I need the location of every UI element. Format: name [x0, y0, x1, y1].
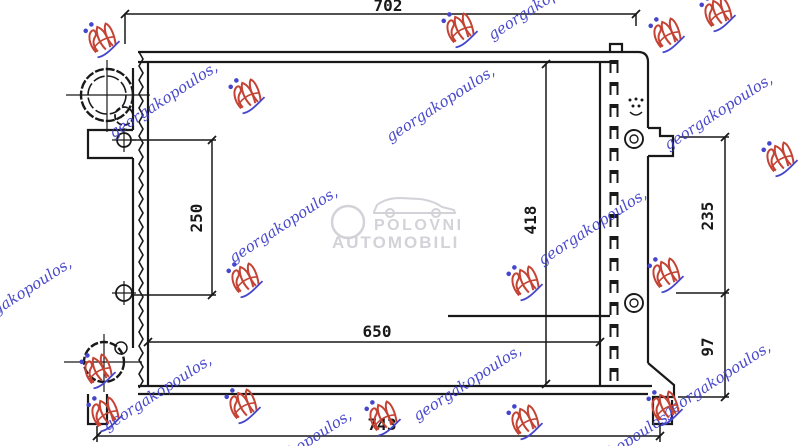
watermark-stamp-icon: [77, 345, 118, 389]
watermark-text: georgakopoulos,: [661, 70, 776, 154]
dimension-702: 702: [374, 0, 403, 15]
dot: [635, 98, 638, 101]
watermark-stamp-icon: [759, 133, 800, 177]
watermark-stamp-icon: [81, 14, 122, 58]
logo-line1: POLOVNI: [374, 217, 464, 234]
dimension-235: 235: [698, 202, 717, 231]
dimension-650: 650: [363, 322, 392, 341]
watermark-text: georgakopoulos,: [100, 351, 215, 435]
center-watermark-logo: POLOVNI AUTOMOBILI: [332, 198, 464, 252]
screw-head-icon-top: [625, 130, 643, 148]
watermark-text: georgakopoulos,: [106, 58, 221, 142]
watermark-text: georgakopoulos,: [535, 185, 650, 269]
vent-dots-icon: [629, 98, 644, 116]
radiator-diagram-page: POLOVNI AUTOMOBILI 702: [0, 0, 800, 446]
watermark-text: georgakopoulos,: [0, 254, 75, 338]
watermark-stamp-icon: [645, 249, 686, 293]
dot: [632, 105, 635, 108]
dimension-97: 97: [698, 337, 717, 356]
watermark-text: georgakopoulos,: [383, 62, 498, 146]
watermark-stamp-icon: [226, 70, 267, 114]
watermark-stamp-icon: [439, 4, 480, 48]
screw-outer: [625, 294, 643, 312]
screw-inner: [630, 299, 638, 307]
dot: [638, 105, 641, 108]
watermark-stamp-icon: [504, 396, 545, 440]
watermark-text: georgakopoulos,: [226, 183, 341, 267]
dot: [641, 99, 644, 102]
watermark-text: georgakopoulos,: [485, 0, 600, 44]
dot: [629, 99, 632, 102]
logo-line2: AUTOMOBILI: [332, 233, 459, 252]
screw-head-icon-bottom: [625, 294, 643, 312]
watermark-stamp-icon: [697, 0, 738, 32]
watermark-stamp-icon: [224, 254, 265, 298]
dimension-250: 250: [187, 204, 206, 233]
watermark-stamp-icon: [504, 257, 545, 301]
watermark-text: georgakopoulos,: [240, 406, 355, 446]
dimension-418: 418: [521, 206, 540, 235]
watermark-stamp-icon: [646, 9, 687, 53]
screw-outer: [625, 130, 643, 148]
vent-arc: [630, 112, 642, 115]
screw-inner: [630, 135, 638, 143]
radiator-drawing-canvas: POLOVNI AUTOMOBILI 702: [0, 0, 800, 446]
